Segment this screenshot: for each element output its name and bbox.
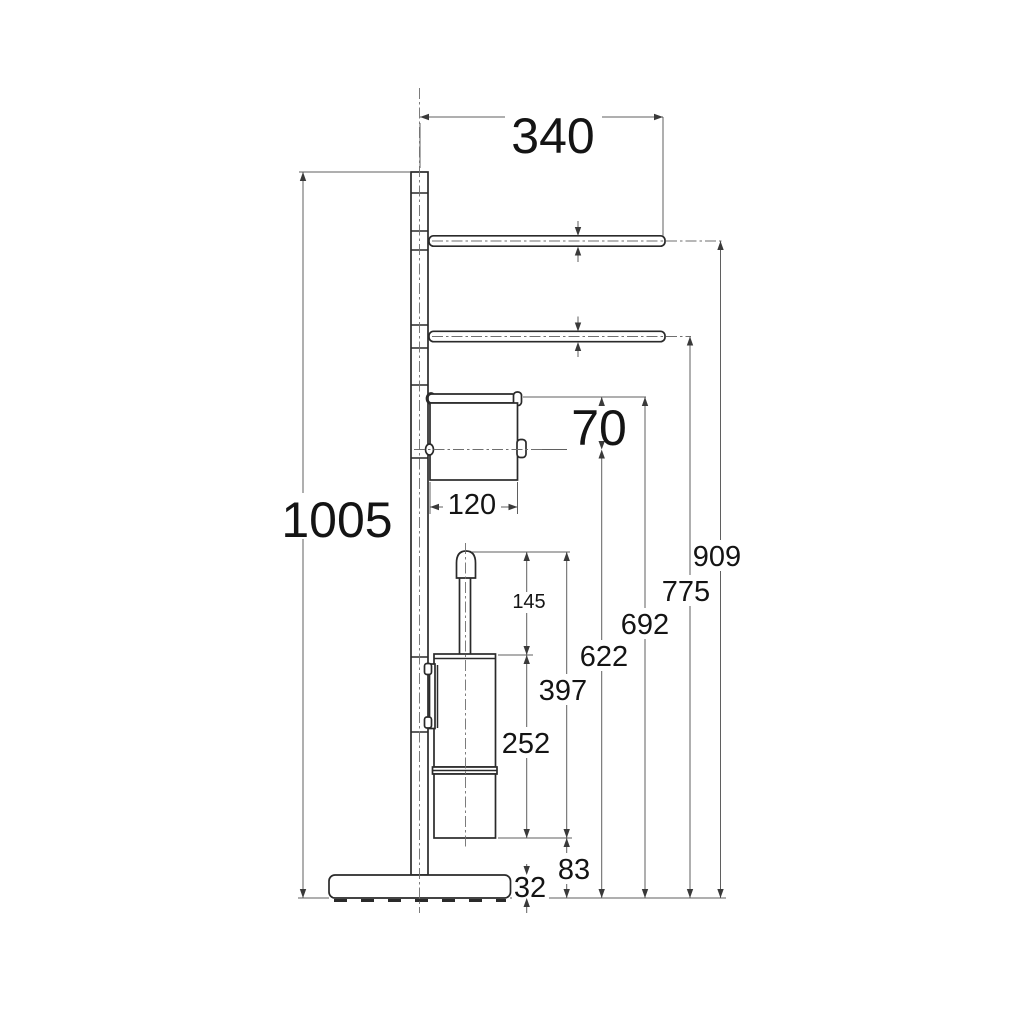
label-paper-holder-width: 120 xyxy=(448,489,496,521)
technical-drawing-canvas: 340 1005 70 120 145 397 252 622 692 775 … xyxy=(0,0,1024,1024)
label-brush-handle-length: 145 xyxy=(512,591,545,613)
bathroom-stand-dimension-drawing: 340 1005 70 120 145 397 252 622 692 775 … xyxy=(0,0,1024,1024)
label-paper-holder-axis-height: 622 xyxy=(580,641,628,673)
brush-container-lower xyxy=(434,774,496,838)
label-brush-span: 397 xyxy=(539,675,587,707)
label-bar-length: 340 xyxy=(511,108,594,164)
paper-holder-top-bar xyxy=(428,394,516,403)
paper-holder xyxy=(426,392,527,480)
brush-unit xyxy=(425,551,498,838)
label-total-height: 1005 xyxy=(281,492,392,548)
label-container-clearance: 83 xyxy=(558,854,590,886)
brush-bracket-tab-top xyxy=(425,664,432,675)
label-towel-bar-top-height: 909 xyxy=(693,541,741,573)
label-brush-container-height: 252 xyxy=(502,728,550,760)
brush-container-upper xyxy=(434,654,496,767)
brush-handle-stem xyxy=(460,570,471,656)
paper-holder-knob xyxy=(517,440,526,458)
label-paper-holder-top-height: 692 xyxy=(621,609,669,641)
label-base-thickness: 32 xyxy=(514,872,546,904)
brush-bracket-tab-bottom xyxy=(425,717,432,728)
paper-holder-cover xyxy=(430,403,518,480)
label-paper-holder-offset: 70 xyxy=(571,400,627,456)
label-towel-bar-lower-height: 775 xyxy=(662,576,710,608)
brush-handle-knob xyxy=(457,551,476,578)
